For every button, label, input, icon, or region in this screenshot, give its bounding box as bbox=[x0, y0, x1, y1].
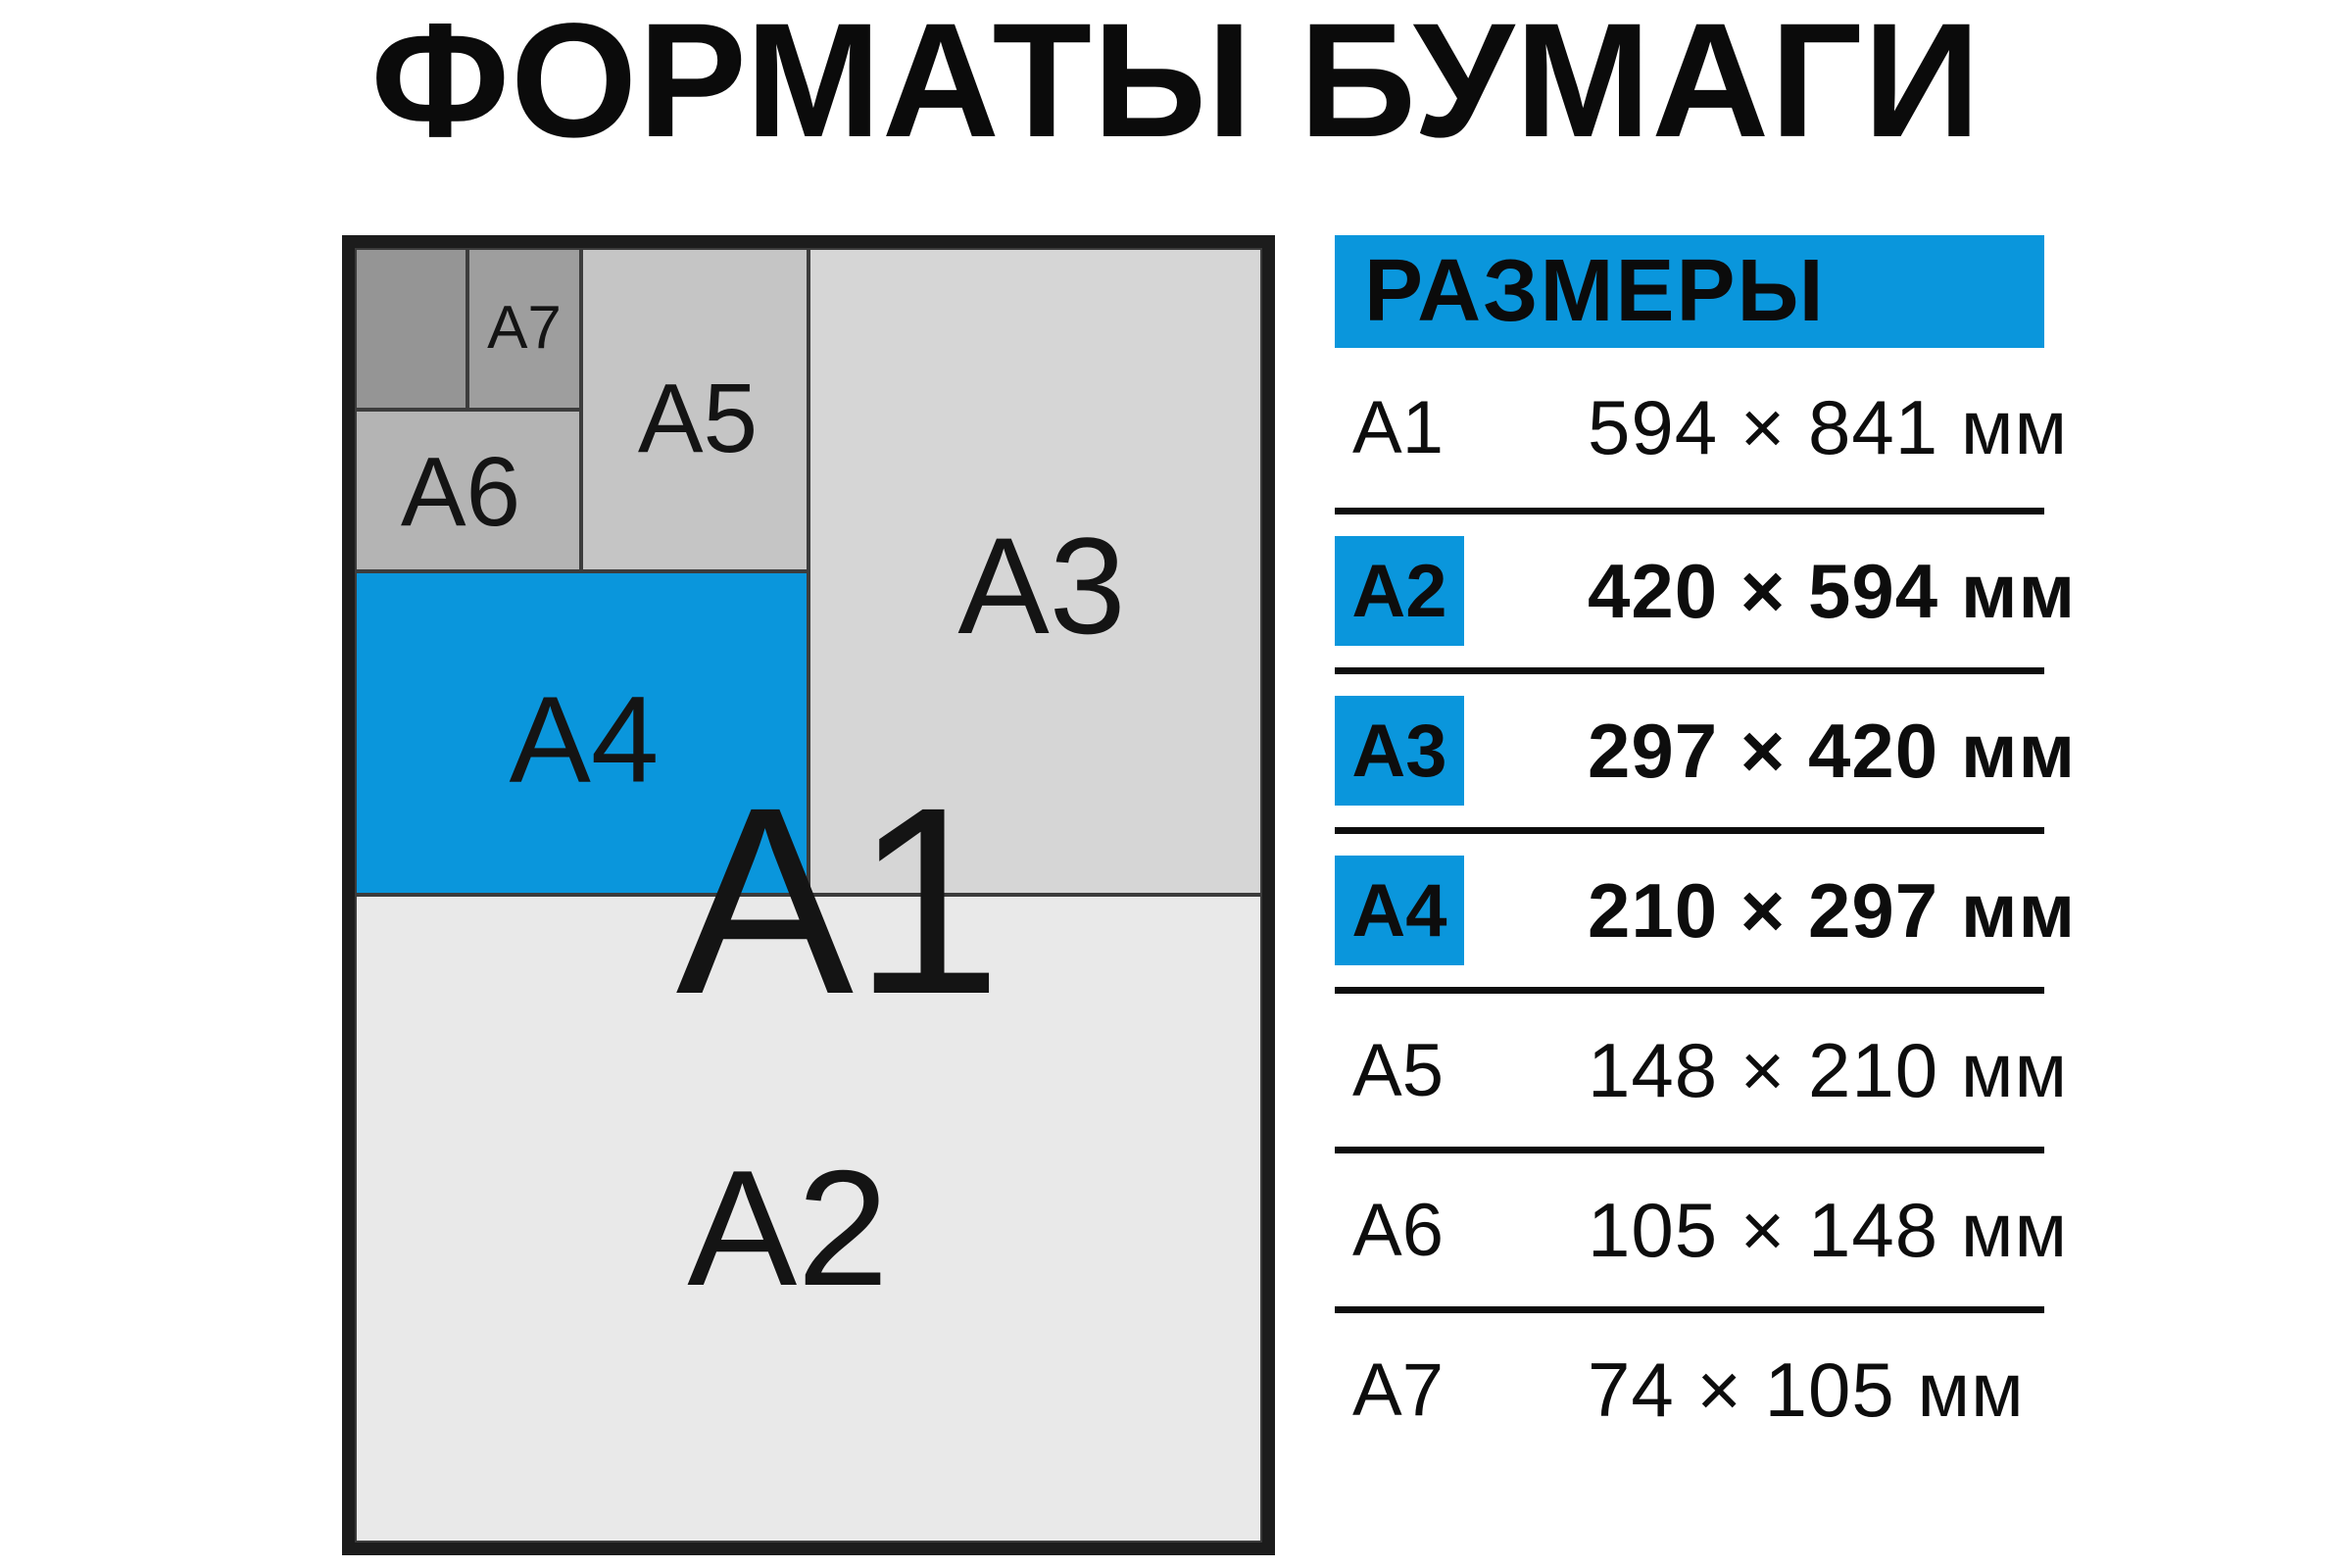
diagram-label-a4: А4 bbox=[510, 679, 660, 802]
format-cell: А3 bbox=[1335, 696, 1588, 806]
format-cell: А2 bbox=[1335, 536, 1588, 646]
format-label: А2 bbox=[1335, 536, 1464, 646]
size-value: 148 × 210 мм bbox=[1588, 1026, 2068, 1115]
format-label: А4 bbox=[1335, 856, 1464, 965]
size-value: 210 × 297 мм bbox=[1588, 866, 2076, 955]
diagram-label-a2: А2 bbox=[687, 1146, 889, 1310]
size-value: 74 × 105 мм bbox=[1588, 1346, 2044, 1435]
table-row: А6 105 × 148 мм bbox=[1335, 1147, 2044, 1306]
size-value: 420 × 594 мм bbox=[1588, 547, 2076, 636]
size-table: РАЗМЕРЫ А1 594 × 841 мм А2 420 × 594 мм … bbox=[1335, 235, 2044, 1466]
page: ФОРМАТЫ БУМАГИ А7 А6 А5 А4 А3 А1 А2 РАЗМ… bbox=[0, 0, 2352, 1568]
format-label: А7 bbox=[1335, 1335, 1464, 1445]
table-row: А1 594 × 841 мм bbox=[1335, 348, 2044, 508]
table-row: А7 74 × 105 мм bbox=[1335, 1306, 2044, 1466]
region-a8-unlabeled bbox=[355, 248, 467, 410]
format-cell: А6 bbox=[1335, 1175, 1588, 1285]
diagram-label-a7: А7 bbox=[487, 298, 562, 359]
diagram-label-a6: А6 bbox=[401, 443, 520, 541]
table-row: А2 420 × 594 мм bbox=[1335, 508, 2044, 667]
paper-format-diagram: А7 А6 А5 А4 А3 А1 А2 bbox=[342, 235, 1275, 1555]
diagram-label-a5: А5 bbox=[638, 369, 758, 467]
format-label: А1 bbox=[1335, 373, 1464, 483]
size-value: 594 × 841 мм bbox=[1588, 383, 2068, 472]
size-table-body: А1 594 × 841 мм А2 420 × 594 мм А3 297 ×… bbox=[1335, 348, 2044, 1466]
table-row: А4 210 × 297 мм bbox=[1335, 827, 2044, 987]
format-label: А3 bbox=[1335, 696, 1464, 806]
format-cell: А7 bbox=[1335, 1335, 1588, 1445]
table-row: А5 148 × 210 мм bbox=[1335, 987, 2044, 1147]
format-cell: А1 bbox=[1335, 373, 1588, 483]
diagram-label-a1: А1 bbox=[676, 767, 1003, 1034]
format-label: А5 bbox=[1335, 1015, 1464, 1125]
format-cell: А5 bbox=[1335, 1015, 1588, 1125]
diagram-label-a3: А3 bbox=[957, 517, 1125, 655]
page-title: ФОРМАТЫ БУМАГИ bbox=[0, 0, 2352, 163]
size-value: 297 × 420 мм bbox=[1588, 707, 2076, 796]
format-cell: А4 bbox=[1335, 856, 1588, 965]
table-row: А3 297 × 420 мм bbox=[1335, 667, 2044, 827]
size-table-header: РАЗМЕРЫ bbox=[1335, 235, 2044, 348]
format-label: А6 bbox=[1335, 1175, 1464, 1285]
size-value: 105 × 148 мм bbox=[1588, 1186, 2068, 1275]
